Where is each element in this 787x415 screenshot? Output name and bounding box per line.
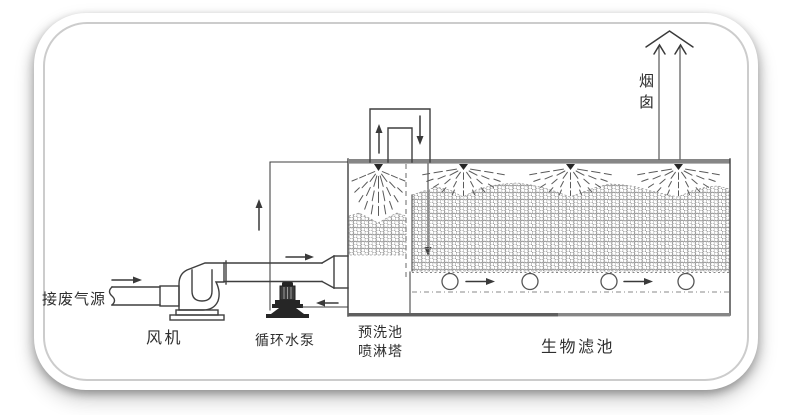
pipe-break-symbol — [110, 287, 115, 305]
centrifugal-fan — [170, 263, 224, 320]
inlet-flow-arrow — [112, 277, 142, 284]
biofilter-label: 生物滤池 — [541, 338, 615, 356]
bottom-channel-flow-arrow-2 — [624, 278, 653, 285]
fan-pedestal — [176, 310, 218, 315]
tower-packing-media — [349, 213, 406, 255]
bottom-channel-flow-arrow-1 — [466, 278, 495, 285]
prewash-label-line1: 预洗池 — [358, 324, 403, 340]
circulating-pump — [266, 282, 309, 318]
bottom-bar-dark-segment — [348, 313, 558, 316]
air-channel-hole — [601, 274, 617, 290]
air-channel-hole — [442, 274, 458, 290]
pump-flange — [272, 304, 303, 308]
pump-coupling — [275, 300, 300, 304]
fan-base-plate — [170, 315, 224, 320]
circulating-pump-label: 循环水泵 — [255, 332, 315, 348]
pump-base — [266, 314, 309, 318]
biofilter-spray-nozzle-3 — [674, 164, 683, 170]
biofilter-spray-nozzle-1 — [459, 164, 468, 170]
pump-skirt — [271, 308, 304, 314]
waste-gas-inlet-duct — [110, 286, 180, 306]
air-channel-hole — [522, 274, 538, 290]
riser-flow-arrow — [256, 199, 263, 230]
inlet-source-label: 接废气源 — [42, 291, 106, 308]
biofilter-packing-media — [412, 183, 729, 271]
screenshot-canvas: 接废气源 风机 — [0, 0, 787, 415]
fan-scroll-inner — [192, 270, 212, 301]
fan-volute-casing — [179, 263, 224, 310]
tower-spray-nozzle — [374, 164, 383, 171]
prewash-label-line2: 喷淋塔 — [358, 343, 403, 359]
chimney-label-char1: 烟 — [639, 73, 655, 90]
fan-inlet-flange — [160, 286, 179, 306]
tower-outlet-flow-arrow — [376, 124, 383, 153]
fan-outlet-flow-arrow — [286, 254, 314, 261]
biofilter-inlet-flow-arrow — [417, 116, 424, 145]
tower-spray — [352, 172, 405, 216]
chimney-exhaust-arrow — [646, 31, 693, 47]
process-flow-diagram: 接废气源 风机 — [0, 0, 787, 415]
duct-diffuser-cone — [322, 256, 334, 288]
fan-label: 风机 — [146, 329, 183, 347]
pump-suction-flow-arrow — [316, 300, 338, 307]
biofilter-spray-nozzle-2 — [566, 164, 575, 170]
unit-top-bar — [348, 159, 730, 164]
air-channel-hole — [678, 274, 694, 290]
chimney-label-char2: 囱 — [639, 94, 655, 111]
